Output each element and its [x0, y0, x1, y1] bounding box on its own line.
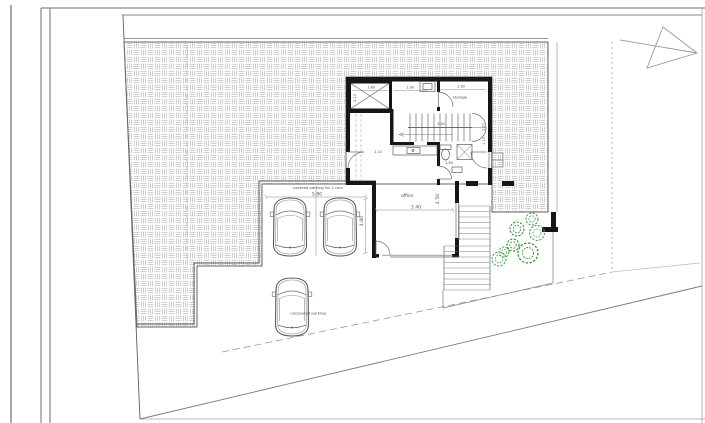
dim-office-depth: 4.50 — [435, 194, 440, 204]
window-fixture — [420, 82, 435, 92]
car-topview-2 — [320, 198, 360, 256]
building-walls — [346, 77, 492, 258]
covered-parking — [265, 186, 368, 256]
dim-stair-width: 1.10 — [482, 137, 486, 145]
tree — [518, 243, 538, 263]
tree — [530, 226, 545, 241]
dim-stair-length: 3.40 — [437, 122, 445, 126]
tree — [492, 252, 506, 266]
tree — [510, 222, 524, 236]
paver-hatch — [124, 39, 557, 328]
dim-office-width: 3.40 — [411, 205, 421, 210]
door-swings — [348, 92, 487, 255]
car-topview-1 — [270, 198, 310, 256]
dim-wc-width: 1.60 — [445, 161, 453, 165]
site-plan-drawing: 1.80 2.10 1.90 2.30 storage 3.40 2.20 1.… — [0, 0, 705, 423]
covered-parking-label: covered parking for 2 cars — [293, 185, 343, 190]
storage-label: storage — [453, 95, 468, 100]
hall-void-dashes — [356, 114, 361, 180]
dim-stair-rise: 2.20 — [482, 123, 486, 131]
dim-entry-door: 1.10 — [374, 150, 382, 154]
wc-fixtures — [440, 145, 472, 173]
garden-trees — [492, 213, 545, 266]
toilet-bowl — [442, 149, 450, 160]
staircase — [399, 114, 486, 142]
wc-sink — [452, 167, 462, 173]
external-stair — [444, 206, 490, 290]
shower-tray — [457, 145, 472, 160]
kitchen-counter — [393, 146, 437, 155]
stair-direction-arrow — [399, 133, 452, 137]
office-label: office — [401, 193, 413, 199]
dim-elevator-width: 1.80 — [367, 86, 375, 90]
tree — [507, 239, 519, 251]
car-topview-3 — [272, 278, 312, 336]
dim-parking-depth: 4.80 — [359, 216, 364, 226]
north-arrow-icon — [620, 27, 697, 68]
uncovered-parking-label: uncovered parking — [290, 311, 326, 316]
tree — [526, 213, 538, 225]
dim-parking-width: 5.80 — [312, 192, 322, 197]
dim-hall-width: 1.90 — [406, 86, 414, 90]
dim-storage-width: 2.30 — [457, 85, 465, 89]
floor-plan-canvas: 1.80 2.10 1.90 2.30 storage 3.40 2.20 1.… — [0, 0, 705, 423]
dim-elevator-depth: 2.10 — [353, 94, 357, 102]
